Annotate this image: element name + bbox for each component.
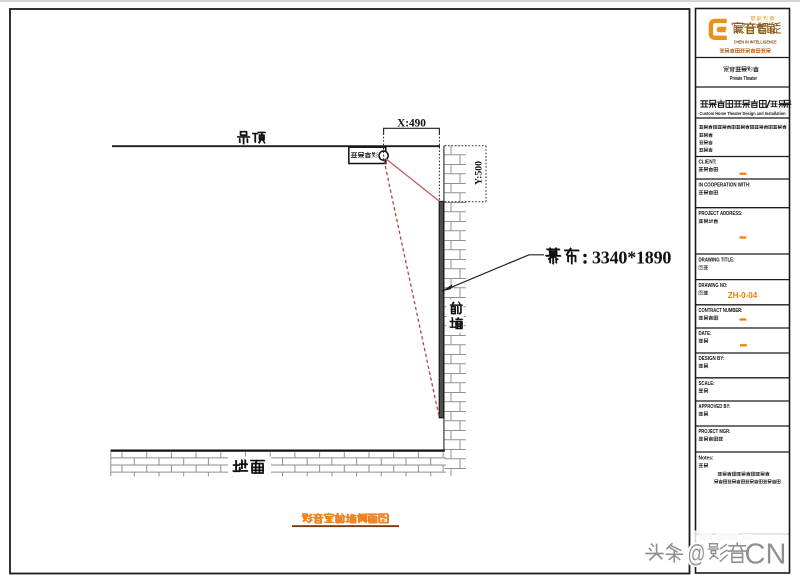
svg-text:PROJECT ADDRESS:: PROJECT ADDRESS: [699, 211, 743, 217]
svg-text:CN: CN [745, 539, 787, 571]
svg-text:3340*1890: 3340*1890 [592, 248, 671, 268]
svg-text:Y:500: Y:500 [473, 161, 484, 185]
svg-text:DRAWING NO:: DRAWING NO: [699, 283, 728, 289]
svg-text:DATE:: DATE: [699, 331, 712, 337]
svg-text:CONTRACT NUMBER:: CONTRACT NUMBER: [699, 308, 743, 314]
svg-text:DESIGN BY:: DESIGN BY: [699, 356, 725, 362]
svg-text:CHEN IN INTELLIGENCE: CHEN IN INTELLIGENCE [734, 39, 777, 44]
svg-text:PROJECT MGR:: PROJECT MGR: [699, 429, 731, 435]
svg-text:ZH-0-04: ZH-0-04 [728, 291, 758, 300]
svg-text:IN COOPERATION WITH:: IN COOPERATION WITH: [699, 183, 751, 189]
svg-text:@: @ [688, 540, 706, 568]
svg-text:X:490: X:490 [397, 118, 426, 130]
svg-text:Private Theater: Private Theater [730, 76, 758, 82]
svg-text:Custom Home Theater Design and: Custom Home Theater Design and Installat… [700, 111, 786, 116]
svg-text:Notes:: Notes: [699, 456, 714, 462]
svg-text:DRAWING TITLE:: DRAWING TITLE: [699, 258, 735, 264]
svg-text:APPROVED BY:: APPROVED BY: [699, 404, 731, 410]
svg-text:SCALE:: SCALE: [699, 381, 715, 387]
svg-text:CLIENT:: CLIENT: [699, 160, 717, 166]
